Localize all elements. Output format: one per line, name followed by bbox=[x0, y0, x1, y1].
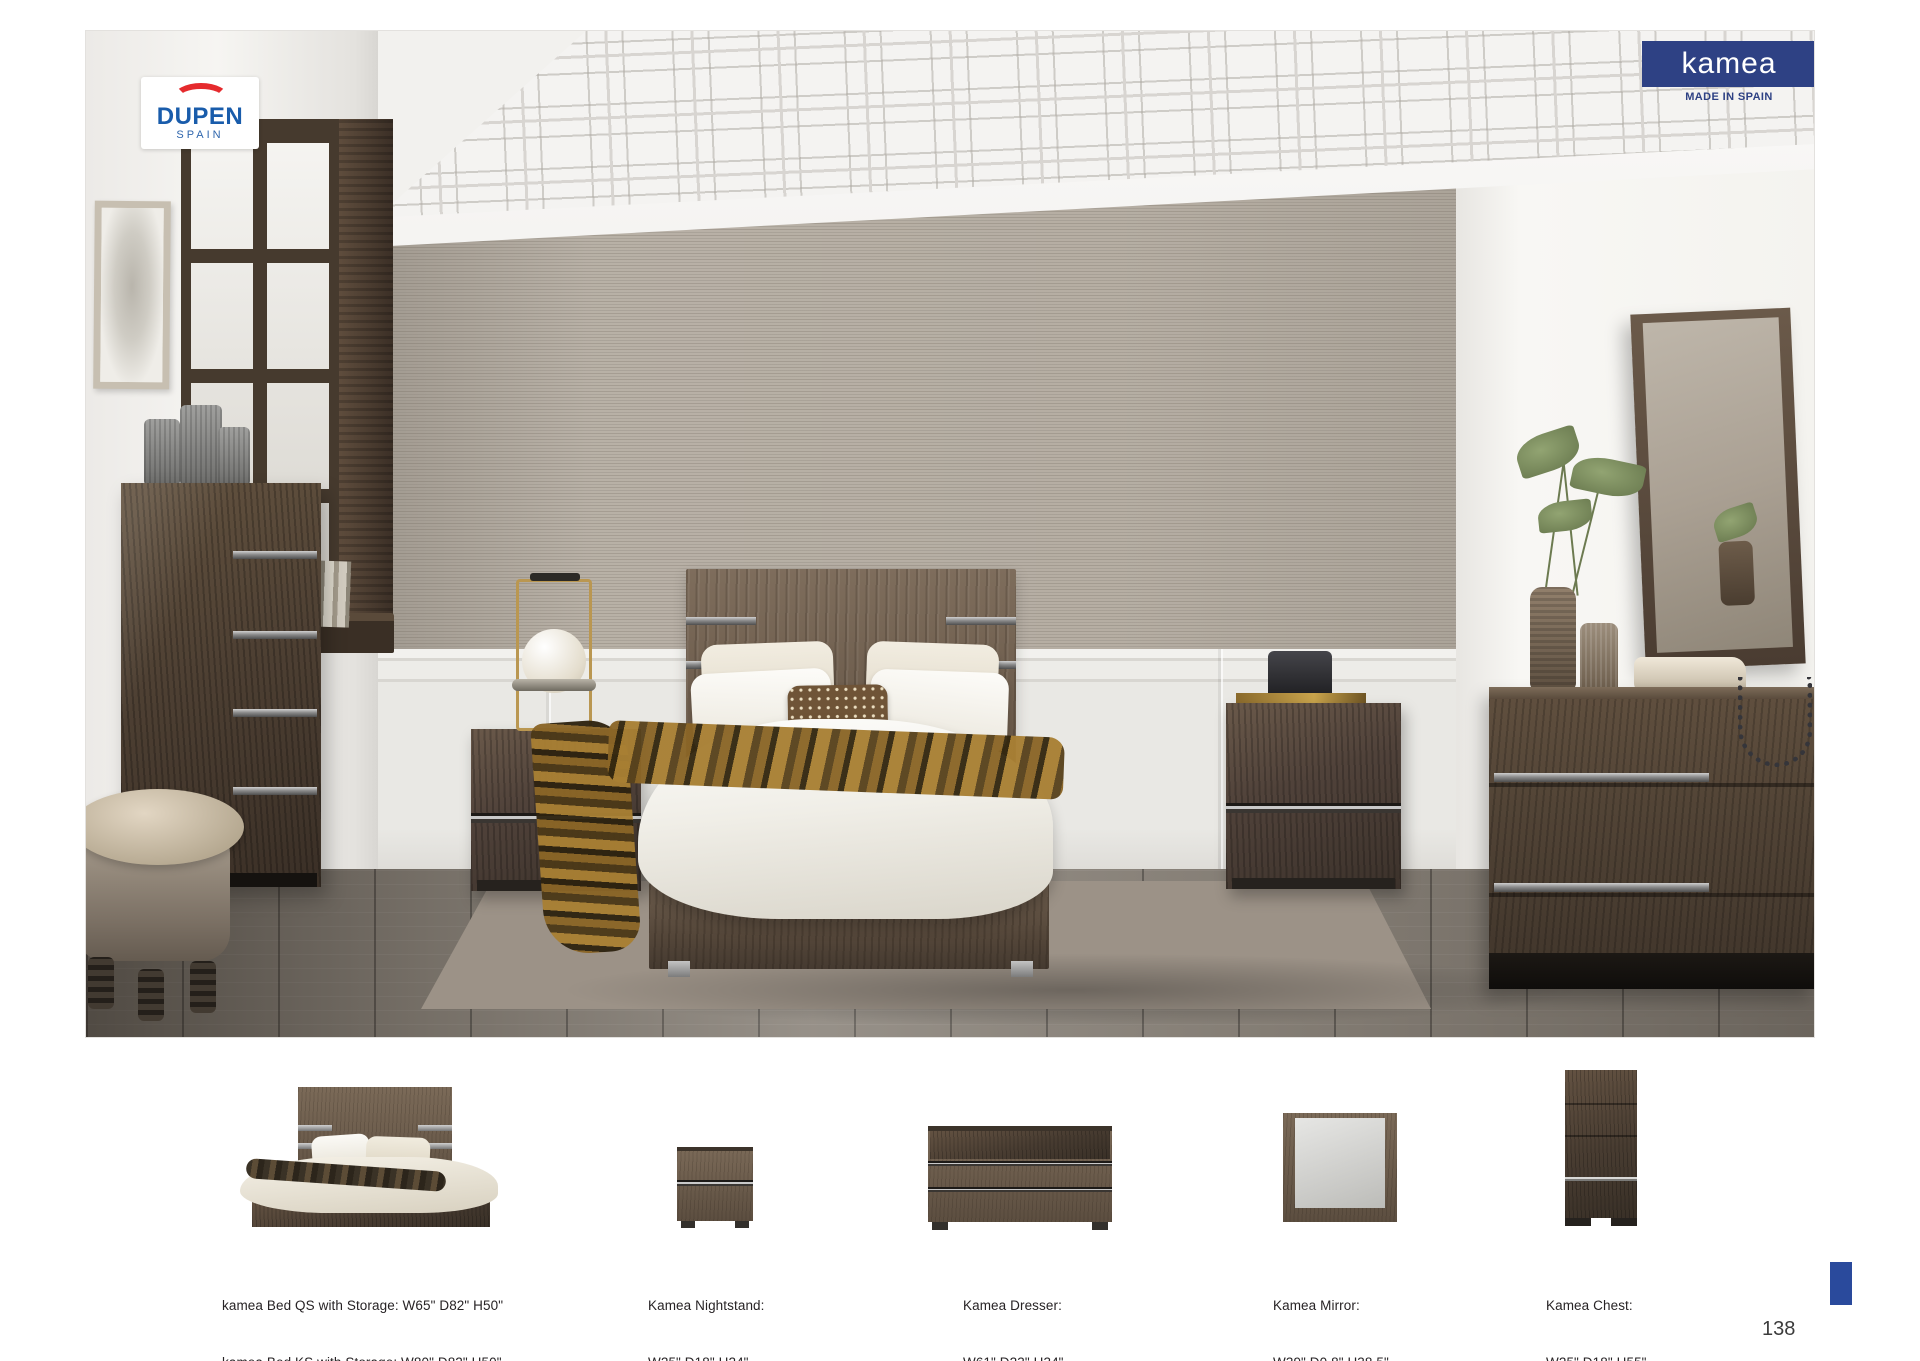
nightstand-right-books bbox=[1236, 693, 1366, 703]
thumbnail-nightstand bbox=[677, 1147, 753, 1221]
thumb-chest-line-2 bbox=[1565, 1135, 1637, 1137]
dresser-plinth bbox=[1489, 953, 1815, 989]
caption-bed-line2: kamea Bed KS with Storage: W80" D82" H50… bbox=[222, 1353, 503, 1361]
nightstand-right bbox=[1226, 703, 1401, 889]
bed-foot-left bbox=[668, 961, 690, 977]
thumb-ns-foot-left bbox=[681, 1221, 695, 1228]
framed-artwork bbox=[93, 201, 171, 390]
caption-mirror-line1: Kamea Mirror: bbox=[1273, 1296, 1389, 1315]
thumbnail-dresser bbox=[928, 1126, 1112, 1222]
thumb-chest-foot-right bbox=[1611, 1218, 1637, 1226]
corner-accent-square bbox=[1830, 1262, 1852, 1305]
chest-handle-1 bbox=[233, 551, 317, 559]
caption-dresser-line2: W61" D23" H34" bbox=[963, 1353, 1064, 1361]
caption-chest-line1: Kamea Chest: bbox=[1546, 1296, 1647, 1315]
thumb-chest-line-1 bbox=[1565, 1103, 1637, 1105]
chest-handle-2 bbox=[233, 631, 317, 639]
caption-bed-line1: kamea Bed QS with Storage: W65" D82" H50… bbox=[222, 1296, 503, 1315]
caption-nightstand: Kamea Nightstand: W25" D18" H24" bbox=[648, 1258, 765, 1361]
thumbnail-bed bbox=[240, 1085, 500, 1230]
made-in-label: MADE IN SPAIN bbox=[1642, 91, 1815, 103]
dresser-vase-short bbox=[1580, 623, 1618, 693]
caption-chest-line2: W25" D18" H55" bbox=[1546, 1353, 1647, 1361]
thumb-ns-top bbox=[677, 1147, 753, 1151]
nightstand-right-plinth bbox=[1232, 878, 1395, 889]
caption-mirror: Kamea Mirror: W39" D0.8" H38.5" bbox=[1273, 1258, 1389, 1361]
headboard-accent-left-top bbox=[686, 617, 756, 625]
dresser-drawer-sep-2 bbox=[1489, 893, 1815, 897]
gray-vase-short bbox=[218, 427, 250, 485]
dupen-logo: DUPEN SPAIN bbox=[141, 77, 259, 149]
chest-handle-4 bbox=[233, 787, 317, 795]
ottoman-foot-2 bbox=[138, 969, 164, 1021]
caption-mirror-line2: W39" D0.8" H38.5" bbox=[1273, 1353, 1389, 1361]
mirror-vase-reflection bbox=[1718, 541, 1755, 606]
thumb-dresser-handle-2 bbox=[928, 1187, 1112, 1192]
gray-vase-tall bbox=[180, 405, 222, 485]
thumb-bed-accent-3 bbox=[418, 1125, 452, 1131]
ottoman-foot-1 bbox=[88, 957, 114, 1009]
dupen-logo-country: SPAIN bbox=[141, 129, 259, 141]
chest-handle-3 bbox=[233, 709, 317, 717]
bed-foot-right bbox=[1011, 961, 1033, 977]
nightstand-right-decor bbox=[1268, 651, 1332, 699]
thumb-chest-accent bbox=[1565, 1177, 1637, 1181]
wall-mirror bbox=[1630, 308, 1805, 671]
mirror-glass bbox=[1643, 317, 1793, 653]
caption-bed: kamea Bed QS with Storage: W65" D82" H50… bbox=[222, 1258, 503, 1361]
headboard-accent-right-top bbox=[946, 617, 1016, 625]
thumb-dresser-foot-left bbox=[932, 1222, 948, 1230]
gray-vase-small bbox=[144, 419, 180, 485]
dresser-handle-2 bbox=[1494, 883, 1709, 892]
caption-chest: Kamea Chest: W25" D18" H55" bbox=[1546, 1258, 1647, 1361]
dresser-handle-1 bbox=[1494, 773, 1709, 782]
caption-nightstand-line2: W25" D18" H24" bbox=[648, 1353, 765, 1361]
dupen-logo-text: DUPEN bbox=[141, 103, 259, 131]
caption-dresser-line1: Kamea Dresser: bbox=[963, 1296, 1064, 1315]
catalog-page: DUPEN SPAIN kamea MADE IN SPAIN bbox=[0, 0, 1920, 1361]
room-photo: DUPEN SPAIN kamea MADE IN SPAIN bbox=[85, 30, 1815, 1038]
thumb-mirror-glass bbox=[1295, 1118, 1385, 1208]
page-number: 138 bbox=[1762, 1318, 1795, 1341]
thumb-ns-handle bbox=[677, 1180, 753, 1186]
dresser-drawer-sep-1 bbox=[1489, 783, 1815, 787]
thumb-dresser-drawer-1 bbox=[930, 1131, 1110, 1159]
thumbnail-chest bbox=[1565, 1070, 1637, 1218]
dresser-vase-tall bbox=[1530, 587, 1576, 691]
caption-nightstand-line1: Kamea Nightstand: bbox=[648, 1296, 765, 1315]
mirror-plant-reflection bbox=[1710, 501, 1761, 543]
ottoman-foot-3 bbox=[190, 961, 216, 1013]
table-lamp-handle bbox=[530, 573, 580, 581]
nightstand-right-handle bbox=[1226, 803, 1401, 813]
artwork-print bbox=[100, 208, 164, 383]
thumb-chest-foot-left bbox=[1565, 1218, 1591, 1226]
table-lamp-base bbox=[512, 679, 596, 691]
thumb-bed-accent-1 bbox=[298, 1125, 332, 1131]
thumb-ns-foot-right bbox=[735, 1221, 749, 1228]
collection-banner: kamea bbox=[1642, 41, 1815, 87]
thumb-dresser-handle-1 bbox=[928, 1161, 1112, 1166]
thumb-dresser-foot-right bbox=[1092, 1222, 1108, 1230]
caption-dresser: Kamea Dresser: W61" D23" H34" bbox=[963, 1258, 1064, 1361]
decor-chain bbox=[1738, 677, 1812, 767]
thumbnail-mirror bbox=[1283, 1113, 1397, 1222]
